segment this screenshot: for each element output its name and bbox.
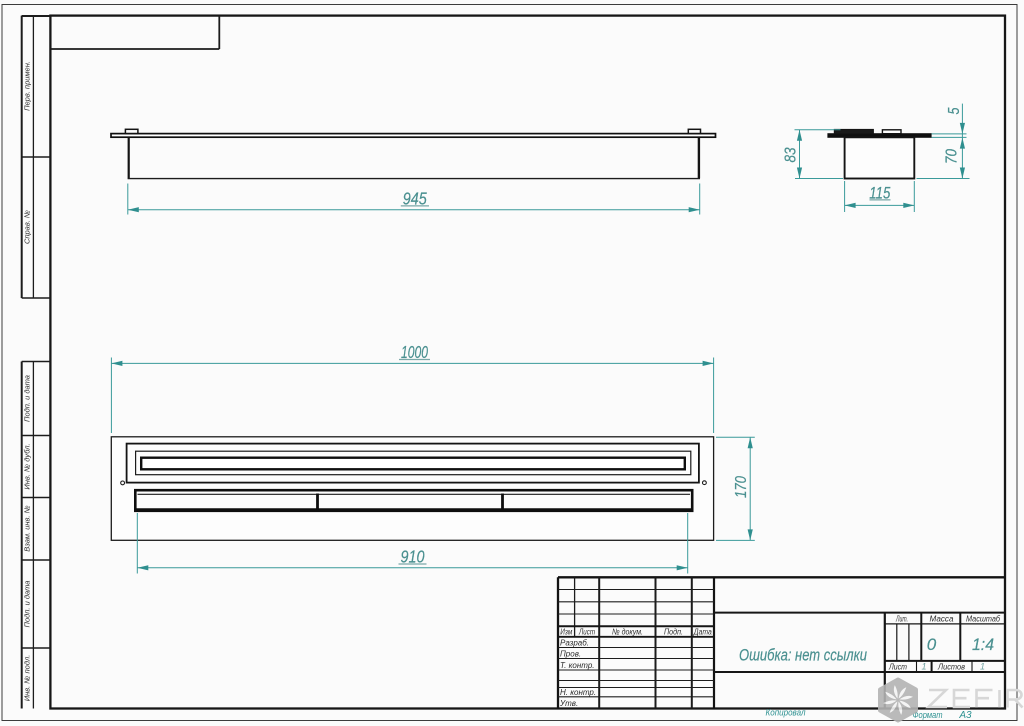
svg-text:83: 83 [783, 147, 800, 162]
svg-text:Инв. № дубл.: Инв. № дубл. [23, 443, 32, 489]
svg-text:Подп.: Подп. [664, 627, 683, 637]
svg-text:945: 945 [403, 189, 427, 209]
svg-text:Пров.: Пров. [560, 650, 581, 659]
svg-text:Лист: Лист [578, 627, 595, 637]
svg-text:Подп. и дата: Подп. и дата [23, 375, 32, 422]
svg-text:Н. контр.: Н. контр. [560, 688, 596, 697]
svg-text:А3: А3 [958, 710, 972, 721]
svg-text:1000: 1000 [401, 342, 428, 362]
svg-text:170: 170 [733, 476, 750, 498]
svg-text:Т. контр.: Т. контр. [560, 661, 595, 670]
svg-text:5: 5 [946, 107, 963, 114]
svg-text:Масштаб: Масштаб [966, 614, 1000, 623]
svg-text:115: 115 [869, 185, 891, 203]
svg-text:1:4: 1:4 [972, 635, 994, 654]
svg-text:70: 70 [944, 149, 961, 164]
svg-text:Дата: Дата [693, 627, 712, 637]
svg-text:Разраб.: Разраб. [560, 639, 589, 648]
svg-text:Перв. примен.: Перв. примен. [23, 61, 32, 111]
svg-text:Изм: Изм [560, 627, 572, 637]
svg-text:Подп. и дата: Подп. и дата [23, 581, 32, 628]
svg-text:Ошибка: нет ссылки: Ошибка: нет ссылки [739, 647, 867, 665]
svg-text:Листов: Листов [937, 662, 965, 672]
svg-text:Взам. инв. №: Взам. инв. № [23, 505, 32, 551]
svg-text:1: 1 [980, 662, 985, 672]
svg-text:Лит.: Лит. [895, 614, 908, 623]
svg-text:910: 910 [401, 547, 425, 567]
svg-text:0: 0 [927, 635, 937, 654]
svg-text:Утв.: Утв. [559, 699, 578, 708]
svg-text:Копировал: Копировал [766, 708, 807, 719]
svg-text:№ докум.: № докум. [612, 627, 643, 637]
svg-text:Лист: Лист [888, 662, 907, 672]
svg-text:Инв. № подл.: Инв. № подл. [23, 655, 32, 702]
svg-text:Справ. №: Справ. № [23, 210, 32, 244]
svg-text:Масса: Масса [930, 614, 955, 623]
svg-text:1: 1 [922, 662, 927, 672]
